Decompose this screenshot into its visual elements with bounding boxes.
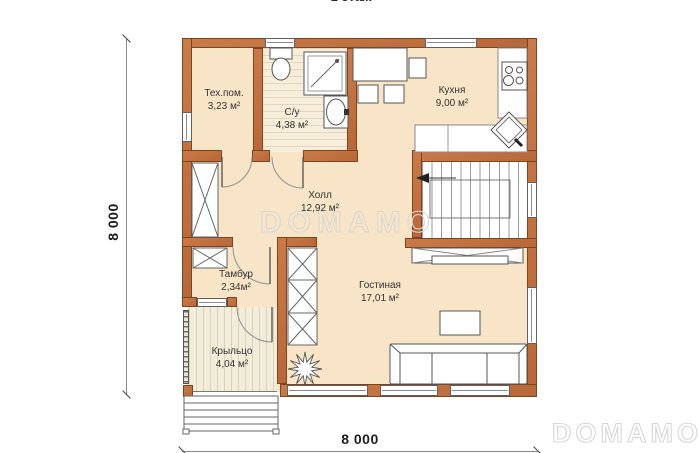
room-name: Гостиная — [359, 280, 401, 291]
stair-arrow-icon — [416, 173, 429, 183]
room-name: С/у — [285, 107, 300, 118]
chair — [409, 58, 426, 78]
room-area: 3,23 м² — [208, 101, 240, 112]
porch-steps — [183, 396, 279, 434]
tv-unit — [412, 248, 523, 264]
shower — [304, 52, 346, 95]
door-arc — [237, 307, 272, 342]
room-name: Тамбур — [219, 269, 253, 280]
door-arc — [272, 157, 303, 188]
room-area: 2,34м² — [221, 282, 251, 293]
room-name: Кухня — [439, 85, 466, 96]
room-area: 4,04 м² — [216, 359, 248, 370]
room-area: 17,01 м² — [361, 293, 399, 304]
watermark-corner: DOMAMO — [552, 418, 700, 449]
room-label-bath: С/у 4,38 м² — [257, 106, 327, 132]
room-area: 4,38 м² — [276, 120, 308, 131]
floor-plan: 1 этаж 8 000 8 000 — [0, 0, 700, 453]
room-area: 9,00 м² — [436, 98, 468, 109]
sofa — [390, 344, 527, 384]
watermark-center: DOMAMO — [260, 206, 436, 240]
tv — [432, 256, 508, 264]
wardrobe — [192, 163, 218, 237]
stair-rail — [430, 180, 510, 218]
room-label-living: Гостиная 17,01 м² — [340, 279, 420, 305]
room-name: Холл — [308, 190, 332, 201]
wardrobe — [193, 248, 227, 268]
plant — [288, 352, 322, 386]
room-name: Крыльцо — [212, 346, 253, 357]
dining-table — [353, 48, 407, 81]
room-label-porch: Крыльцо 4,04 м² — [192, 345, 272, 371]
coffee-table — [440, 311, 480, 335]
room-name: Тех.пом. — [204, 88, 243, 99]
room-label-tech: Тех.пом. 3,23 м² — [184, 87, 264, 113]
room-label-tambour: Тамбур 2,34м² — [196, 268, 276, 294]
chair — [358, 85, 378, 103]
room-label-kitchen: Кухня 9,00 м² — [412, 84, 492, 110]
living-furniture — [288, 248, 527, 386]
closet-column — [288, 248, 317, 345]
bathroom-sink — [324, 96, 349, 128]
toilet — [270, 48, 292, 80]
chair — [384, 85, 404, 103]
door-arc — [222, 157, 252, 187]
